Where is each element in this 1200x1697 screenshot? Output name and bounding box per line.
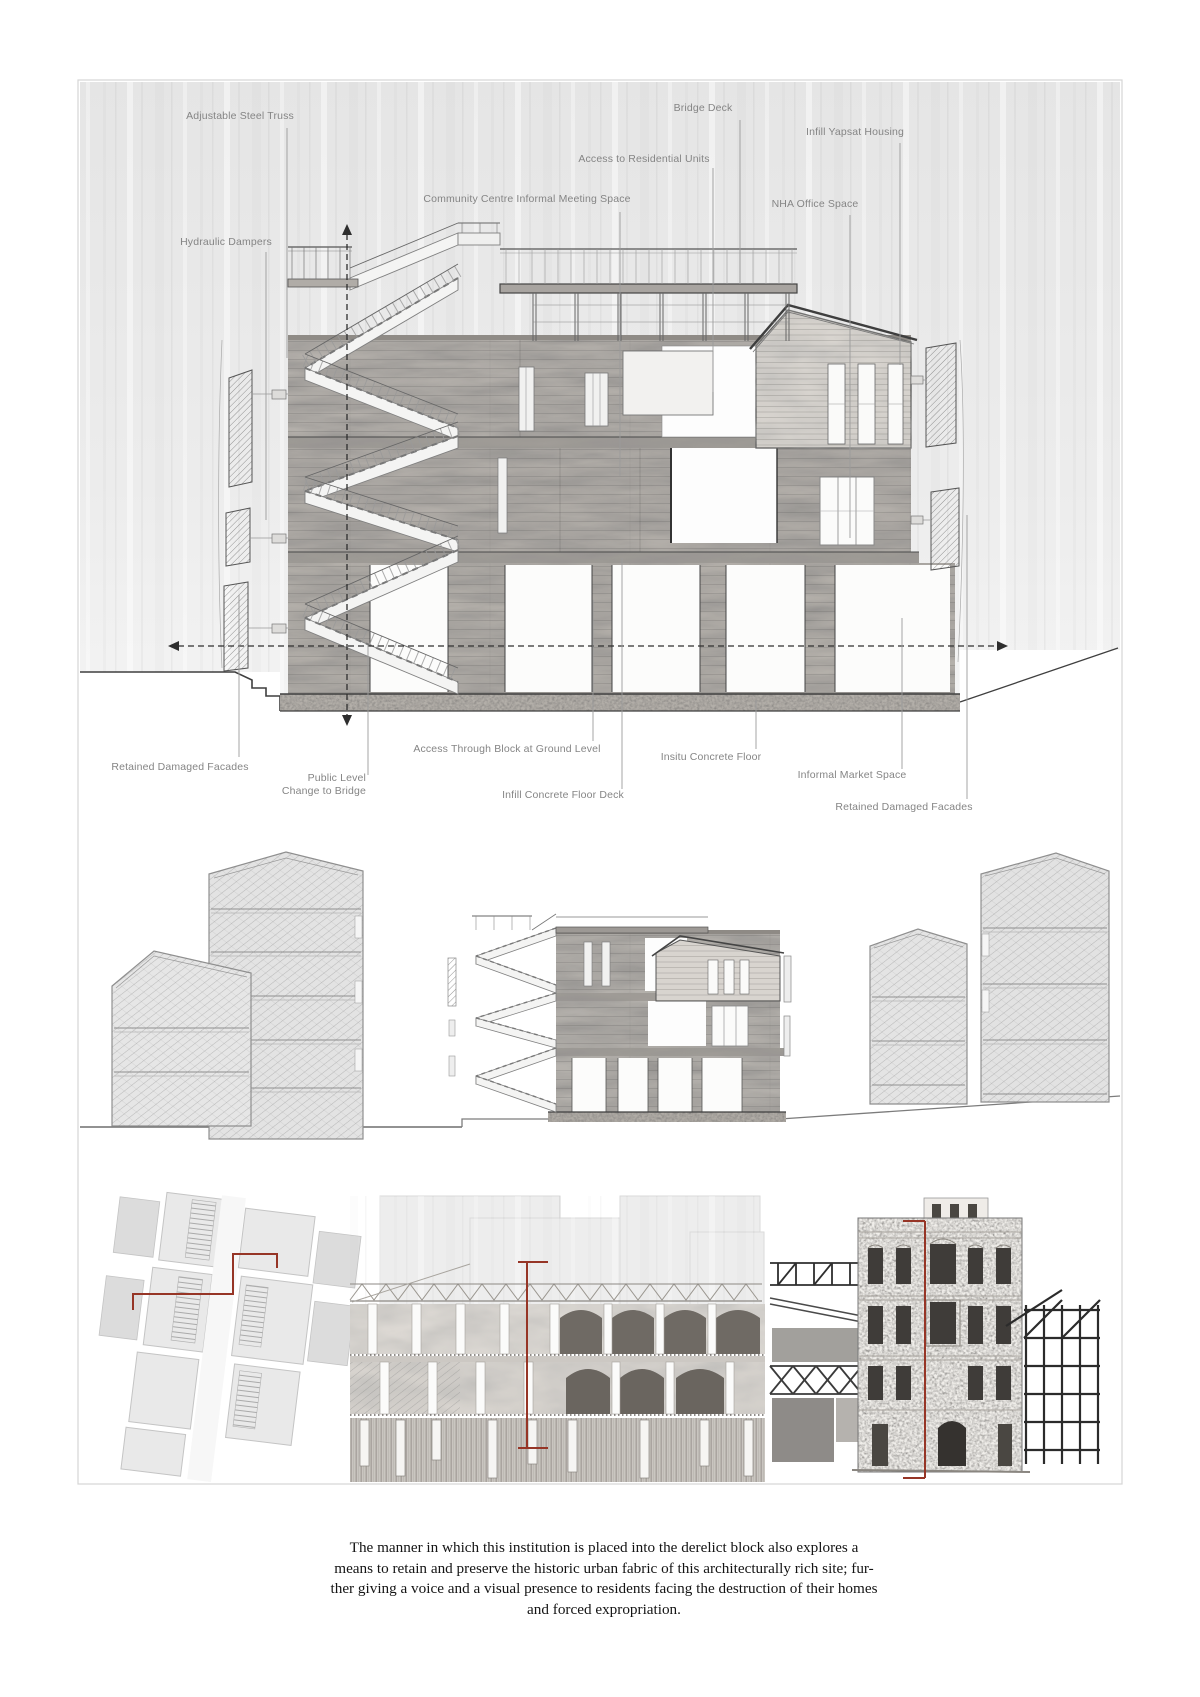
presentation-board: Adjustable Steel Truss Bridge Deck Infil… [0,0,1200,1697]
label-access-residential-units: Access to Residential Units [524,153,764,166]
board-caption: The manner in which this institution is … [259,1538,949,1620]
long-section-figure [350,1196,765,1482]
label-informal-market-space: Informal Market Space [732,769,972,782]
label-community-centre: Community Centre Informal Meeting Space [407,193,647,206]
label-adjustable-steel-truss: Adjustable Steel Truss [120,110,360,123]
label-insitu-concrete-floor: Insitu Concrete Floor [591,751,831,764]
label-public-level-change: Public Level Change to Bridge [166,772,366,798]
label-infill-concrete-floor-deck: Infill Concrete Floor Deck [443,789,683,802]
label-infill-yapsat-housing: Infill Yapsat Housing [735,126,975,139]
board-artwork [0,0,1200,1697]
label-retained-facades-right: Retained Damaged Facades [784,801,1024,814]
label-bridge-deck: Bridge Deck [583,102,823,115]
label-nha-office-space: NHA Office Space [695,198,935,211]
label-hydraulic-dampers: Hydraulic Dampers [106,236,346,249]
